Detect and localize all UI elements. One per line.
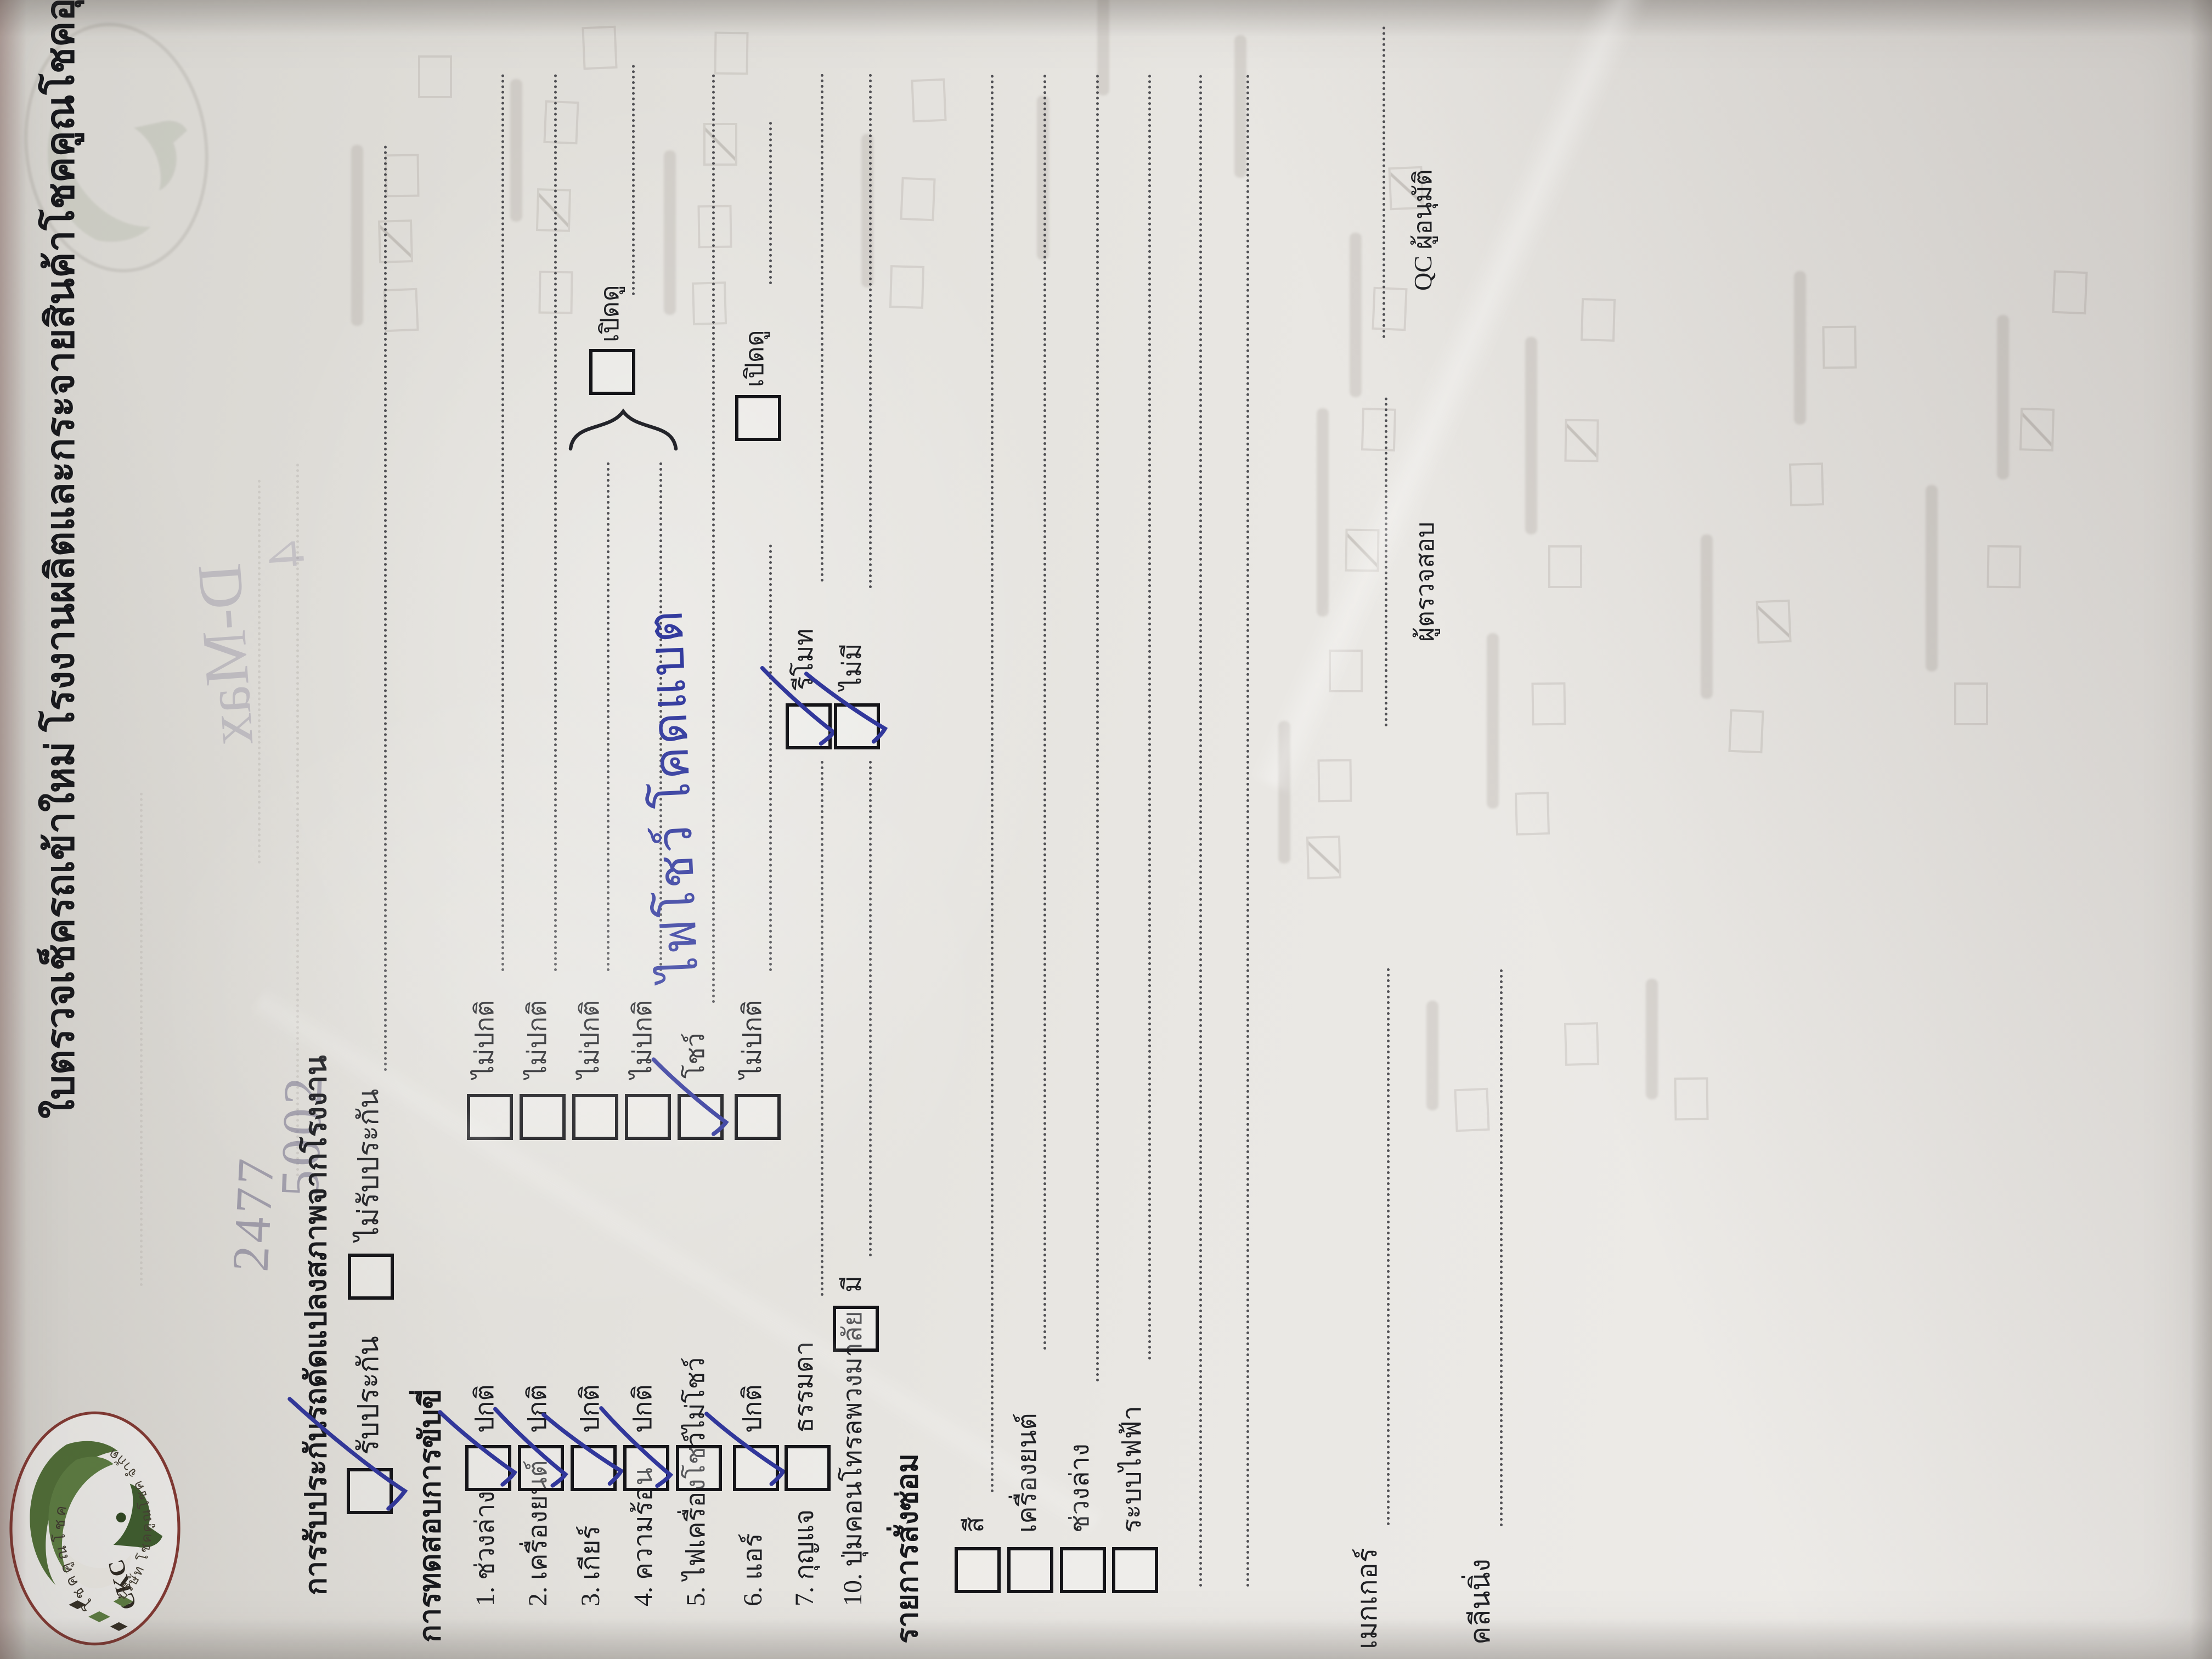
open-check-label: เปิดดู bbox=[742, 330, 768, 387]
ghost-text-smudge bbox=[1487, 633, 1499, 809]
option-label: ปกติ bbox=[630, 1384, 657, 1433]
dotted-line bbox=[991, 74, 994, 1492]
test-item-row: 7. กุญแจ ธรรมดา รีโมท bbox=[785, 0, 835, 1659]
form-title: ใบตรวจเช็ครถเข้าใหม่ โรงงานผลิตและกระจาย… bbox=[41, 0, 82, 1119]
test-item-row: 5. ไฟเครื่องโชว์ ไม่โชว์ โชว์ ไฟโชว์ โคด… bbox=[676, 0, 726, 1659]
dotted-line bbox=[554, 74, 557, 971]
ghost-checkbox bbox=[1674, 1077, 1708, 1121]
option-label: รีโมท bbox=[791, 629, 818, 690]
option-label: โชว์ bbox=[682, 1032, 709, 1079]
ghost-text-smudge bbox=[1317, 408, 1329, 617]
checkbox bbox=[955, 1547, 1001, 1593]
checkbox-warranty-yes bbox=[347, 1468, 393, 1514]
open-check-label: เปิดดู bbox=[597, 285, 623, 342]
option-label: ไม่ปกติ bbox=[577, 1000, 604, 1079]
repair-label: ระบบไฟฟ้า bbox=[1119, 1406, 1146, 1533]
item-label: 7. กุญแจ bbox=[791, 1509, 819, 1606]
dotted-line bbox=[632, 65, 635, 295]
test-item-row: 3. เกียร์ ปกติ ไม่ปกติ bbox=[571, 0, 621, 1659]
dotted-line bbox=[769, 122, 772, 284]
repair-header: รายการสั่งซ่อม bbox=[892, 1453, 923, 1644]
dotted-line bbox=[869, 760, 872, 1256]
ghost-checkbox bbox=[383, 288, 419, 332]
ghost-checkbox bbox=[1548, 545, 1582, 588]
checkbox bbox=[678, 1094, 724, 1140]
checkbox bbox=[833, 1306, 879, 1352]
test-header: การทดสอบการขับขี่ bbox=[415, 1389, 446, 1643]
option-label: ไม่ปกติ bbox=[472, 1000, 499, 1079]
checkbox-open-check-2 bbox=[735, 395, 781, 441]
ghost-text-smudge bbox=[1646, 979, 1658, 1099]
warranty-header: การรับประกันรถดัดแปลงสภาพจากโรงงาน bbox=[301, 1055, 332, 1595]
dotted-line bbox=[1199, 74, 1202, 1587]
ghost-checkbox bbox=[418, 55, 452, 98]
ghost-checkbox bbox=[1822, 326, 1857, 369]
inspector-label: ผู้ตรวจสอบ bbox=[1412, 522, 1438, 642]
ghost-checkbox bbox=[1317, 759, 1352, 803]
company-logo: CKC โชคคูณโชค บริษัท โชคคูณโชค จำกัด bbox=[8, 1408, 182, 1649]
ghost-text-smudge bbox=[1997, 315, 2009, 479]
test-item-row: 10. ปุ่มคอนโทรลพวงมาลัย มี ไม่มี bbox=[833, 0, 883, 1659]
item-label: 6. แอร์ bbox=[740, 1533, 767, 1606]
dotted-line bbox=[1246, 74, 1249, 1587]
checkbox bbox=[1112, 1547, 1158, 1593]
ghost-checkbox bbox=[378, 219, 413, 263]
ghost-checkbox bbox=[1954, 682, 1988, 725]
ghost-text-smudge bbox=[1926, 485, 1938, 672]
ghost-checkbox bbox=[1581, 298, 1616, 342]
paper-sheet: 2477 5002 D-Max 4 CKC โช bbox=[0, 0, 2212, 1659]
checkbox bbox=[623, 1445, 669, 1491]
dotted-line bbox=[1148, 74, 1151, 1359]
ghost-checkbox bbox=[2019, 408, 2055, 452]
dotted-line bbox=[1096, 74, 1099, 1381]
checkbox bbox=[625, 1094, 671, 1140]
option-label: ธรรมดา bbox=[791, 1341, 818, 1433]
dotted-line bbox=[821, 74, 823, 582]
repair-label: ช่วงล่าง bbox=[1066, 1443, 1094, 1533]
item-label: 3. เกียร์ bbox=[577, 1526, 605, 1606]
ghost-checkbox bbox=[1987, 545, 2021, 589]
repair-row: ระบบไฟฟ้า bbox=[1112, 0, 1163, 1659]
warranty-yes-label: รับประกัน bbox=[354, 1336, 385, 1455]
checkbox bbox=[834, 703, 880, 749]
checkbox bbox=[676, 1445, 722, 1491]
checkbox bbox=[785, 1445, 831, 1491]
mirrored-ghost-note: 4 bbox=[254, 539, 317, 569]
ghost-checkbox bbox=[1361, 408, 1396, 452]
repair-label: เครื่องยนต์ bbox=[1014, 1413, 1041, 1533]
approver-label: QC ผู้อนุมัติ bbox=[1410, 169, 1436, 291]
ghost-checkbox bbox=[1789, 462, 1824, 506]
checkbox-open-check-1 bbox=[589, 349, 635, 395]
checkbox bbox=[735, 1094, 781, 1140]
inspector-signature-line bbox=[1385, 397, 1387, 726]
brace bbox=[568, 400, 678, 451]
mirrored-ghost-note: D-Max bbox=[183, 561, 268, 748]
dotted-line bbox=[1043, 74, 1046, 1350]
ghost-checkbox bbox=[1564, 419, 1599, 462]
repair-row: เครื่องยนต์ bbox=[1007, 0, 1058, 1659]
ghost-text-smudge bbox=[1350, 233, 1362, 397]
checkbox bbox=[571, 1445, 617, 1491]
checkbox bbox=[465, 1445, 511, 1491]
ghost-checkbox bbox=[1306, 836, 1341, 879]
dotted-line bbox=[769, 544, 772, 971]
ghost-checkbox bbox=[900, 177, 935, 222]
ghost-checkbox bbox=[1564, 1022, 1599, 1066]
dotted-line bbox=[607, 462, 610, 971]
dotted-line bbox=[501, 74, 504, 971]
dotted-line bbox=[1500, 969, 1503, 1526]
repair-row: สี bbox=[955, 0, 1005, 1659]
ghost-checkbox bbox=[1728, 709, 1764, 754]
option-label: มี bbox=[839, 1276, 866, 1293]
checkbox bbox=[467, 1094, 513, 1140]
warranty-no-label: ไม่รับประกัน bbox=[354, 1089, 385, 1241]
handwritten-note: ไฟโชว์ โคดแบต bbox=[625, 607, 720, 983]
ghost-checkbox bbox=[1515, 792, 1550, 836]
checkbox bbox=[786, 703, 832, 749]
checkbox-warranty-no bbox=[348, 1254, 394, 1300]
ghost-text-smudge bbox=[1525, 337, 1537, 534]
test-item-row: 6. แอร์ ปกติ ไม่ปกติ เปิดดู bbox=[733, 0, 783, 1659]
ghost-text-smudge bbox=[1278, 721, 1290, 864]
item-label: 1. ช่วงล่าง bbox=[472, 1491, 499, 1606]
ghost-checkbox bbox=[1372, 287, 1407, 331]
horse-eye bbox=[116, 1513, 126, 1522]
option-label: ไม่โชว์ bbox=[682, 1357, 709, 1433]
ghost-text-smudge bbox=[1794, 271, 1806, 425]
test-item-row: 1. ช่วงล่าง ปกติ ไม่ปกติ bbox=[465, 0, 516, 1659]
checkbox bbox=[520, 1094, 566, 1140]
option-label: ไม่ปกติ bbox=[740, 1000, 766, 1079]
dotted-line bbox=[1387, 968, 1390, 1525]
ghost-text-smudge bbox=[1234, 35, 1246, 178]
item-label: 10. ปุ่มคอนโทรลพวงมาลัย bbox=[839, 1311, 867, 1606]
checkbox bbox=[1060, 1547, 1106, 1593]
maker-label: เมกเกอร์ bbox=[1353, 1548, 1382, 1649]
option-label: ไม่ปกติ bbox=[524, 1000, 551, 1079]
ghost-checkbox bbox=[889, 265, 924, 309]
option-label: ปกติ bbox=[472, 1384, 499, 1433]
option-label: ไม่มี bbox=[839, 643, 866, 690]
warranty-dotted-line bbox=[384, 145, 387, 1071]
ghost-checkbox bbox=[1345, 529, 1379, 572]
repair-label: สี bbox=[961, 1517, 989, 1533]
ghost-text-smudge bbox=[1426, 1001, 1438, 1110]
dotted-line bbox=[821, 760, 823, 1296]
ghost-dotted-line bbox=[140, 792, 143, 1286]
approver-signature-line bbox=[1383, 26, 1385, 338]
ghost-text-smudge bbox=[351, 145, 363, 326]
dotted-line bbox=[869, 74, 872, 588]
ghost-checkbox bbox=[2052, 270, 2087, 315]
ghost-checkbox bbox=[385, 154, 419, 198]
ghost-checkbox bbox=[1531, 682, 1566, 726]
option-label: ไม่ปกติ bbox=[630, 1000, 657, 1079]
ghost-text-smudge bbox=[1701, 534, 1713, 699]
ghost-checkbox bbox=[1756, 600, 1791, 644]
checkbox bbox=[572, 1094, 618, 1140]
ghost-dotted-line bbox=[296, 463, 299, 1176]
test-item-row: 2. เครื่องยนต์ ปกติ ไม่ปกติ bbox=[518, 0, 568, 1659]
ghost-checkbox bbox=[1329, 650, 1363, 692]
ghost-checkbox bbox=[911, 78, 946, 123]
repair-row: ช่วงล่าง bbox=[1060, 0, 1110, 1659]
option-label: ปกติ bbox=[524, 1384, 551, 1433]
cleaning-label: คลีนนิ่ง bbox=[1466, 1559, 1495, 1645]
option-label: ปกติ bbox=[577, 1384, 604, 1433]
photographed-inspection-form: 2477 5002 D-Max 4 CKC โช bbox=[0, 0, 2212, 1659]
option-label: ปกติ bbox=[740, 1384, 766, 1433]
ghost-checkbox bbox=[1454, 1088, 1489, 1132]
checkbox bbox=[1007, 1547, 1053, 1593]
checkbox bbox=[733, 1445, 779, 1491]
checkbox bbox=[518, 1445, 564, 1491]
